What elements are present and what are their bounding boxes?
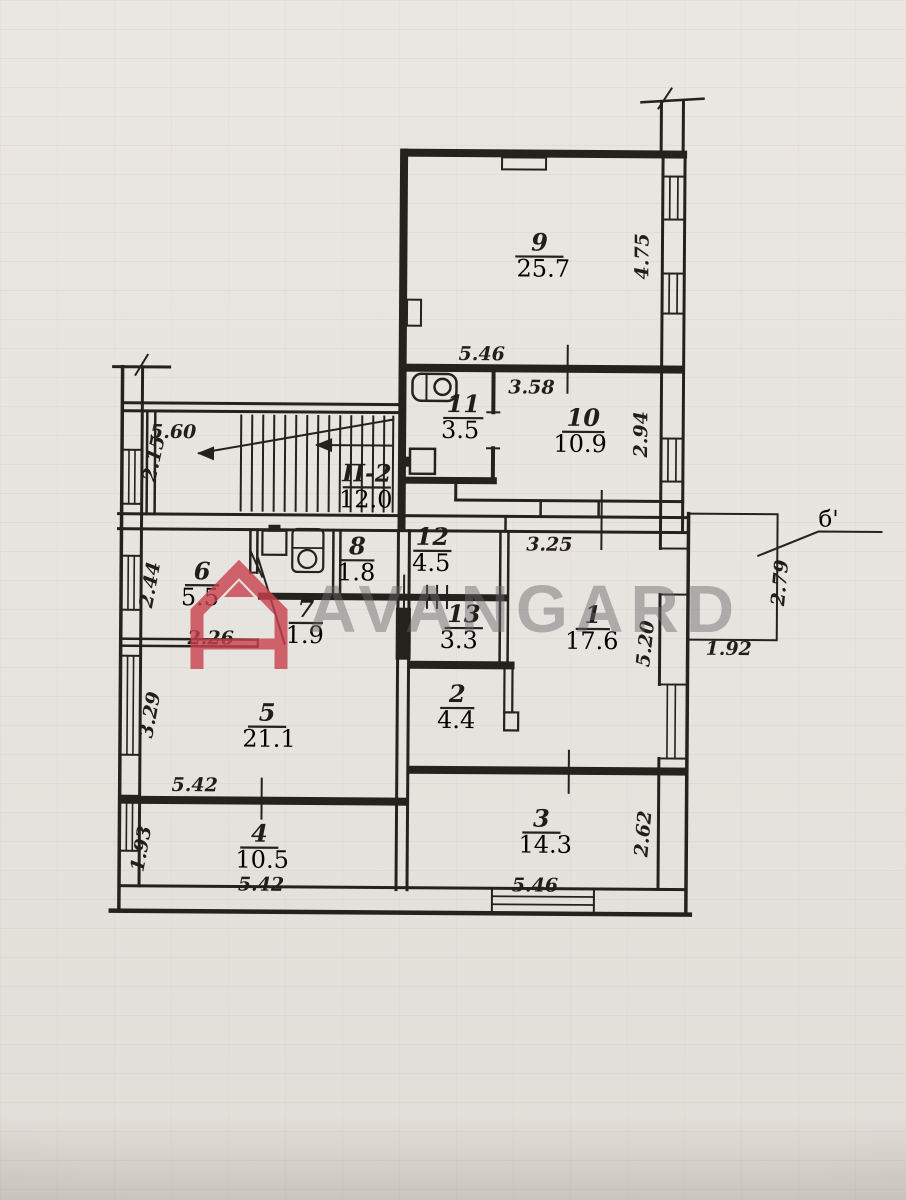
room-5-number: 5	[259, 698, 276, 727]
dim-room9-side: 4.75	[631, 233, 653, 279]
dim-hall-width: 3.25	[526, 534, 572, 556]
window-icon	[120, 656, 141, 755]
dim-room10-side: 2.94	[630, 411, 652, 458]
room-2-number: 2	[448, 679, 466, 708]
balcony-leader-line	[757, 531, 882, 557]
scanned-floor-plan-photo: 9 25.7 10 10.9 11 3.5 П-2 12.0 8 1.8 12 …	[0, 0, 906, 1200]
dim-room4-width: 5.42	[238, 874, 284, 896]
room-9-area: 25.7	[516, 254, 570, 282]
room-5-area: 21.1	[242, 725, 296, 753]
dim-balcony-height: 2.79	[767, 559, 793, 608]
brand-watermark-text: AVANGARD	[308, 572, 741, 647]
floor-plan-svg: 9 25.7 10 10.9 11 3.5 П-2 12.0 8 1.8 12 …	[0, 0, 906, 1200]
room-9-number: 9	[531, 228, 548, 257]
room-6-number: 6	[194, 556, 211, 585]
dim-room3-width: 5.46	[512, 874, 558, 896]
stairs-label: П-2	[341, 458, 392, 487]
room-11-area: 3.5	[441, 416, 479, 444]
room-4-area: 10.5	[235, 845, 289, 873]
dim-room10-top: 3.58	[508, 376, 554, 398]
dim-room5-width: 5.42	[171, 774, 217, 796]
room-3-number: 3	[533, 804, 550, 833]
room-11-number: 11	[447, 389, 481, 418]
room-3-area: 14.3	[518, 830, 572, 858]
room-8-number: 8	[348, 531, 366, 560]
room-12-number: 12	[416, 522, 450, 551]
window-icon	[662, 273, 684, 313]
room-10-area: 10.9	[553, 430, 607, 458]
dim-room4-side: 1.93	[126, 824, 156, 873]
dim-top-width: 5.46	[458, 343, 504, 365]
room-4-number: 4	[251, 819, 268, 848]
dim-room6-side: 2.44	[135, 560, 165, 610]
dim-room3-side: 2.62	[630, 810, 656, 859]
window-icon	[663, 176, 685, 219]
window-icon	[661, 438, 683, 481]
toilet-icon	[292, 529, 323, 572]
room-10-number: 10	[566, 403, 600, 432]
room-2-area: 4.4	[437, 706, 475, 734]
stairs-area: 12.0	[339, 485, 393, 513]
balcony-mark: б'	[818, 507, 838, 533]
window-icon	[659, 684, 688, 758]
sink-icon	[404, 449, 435, 474]
